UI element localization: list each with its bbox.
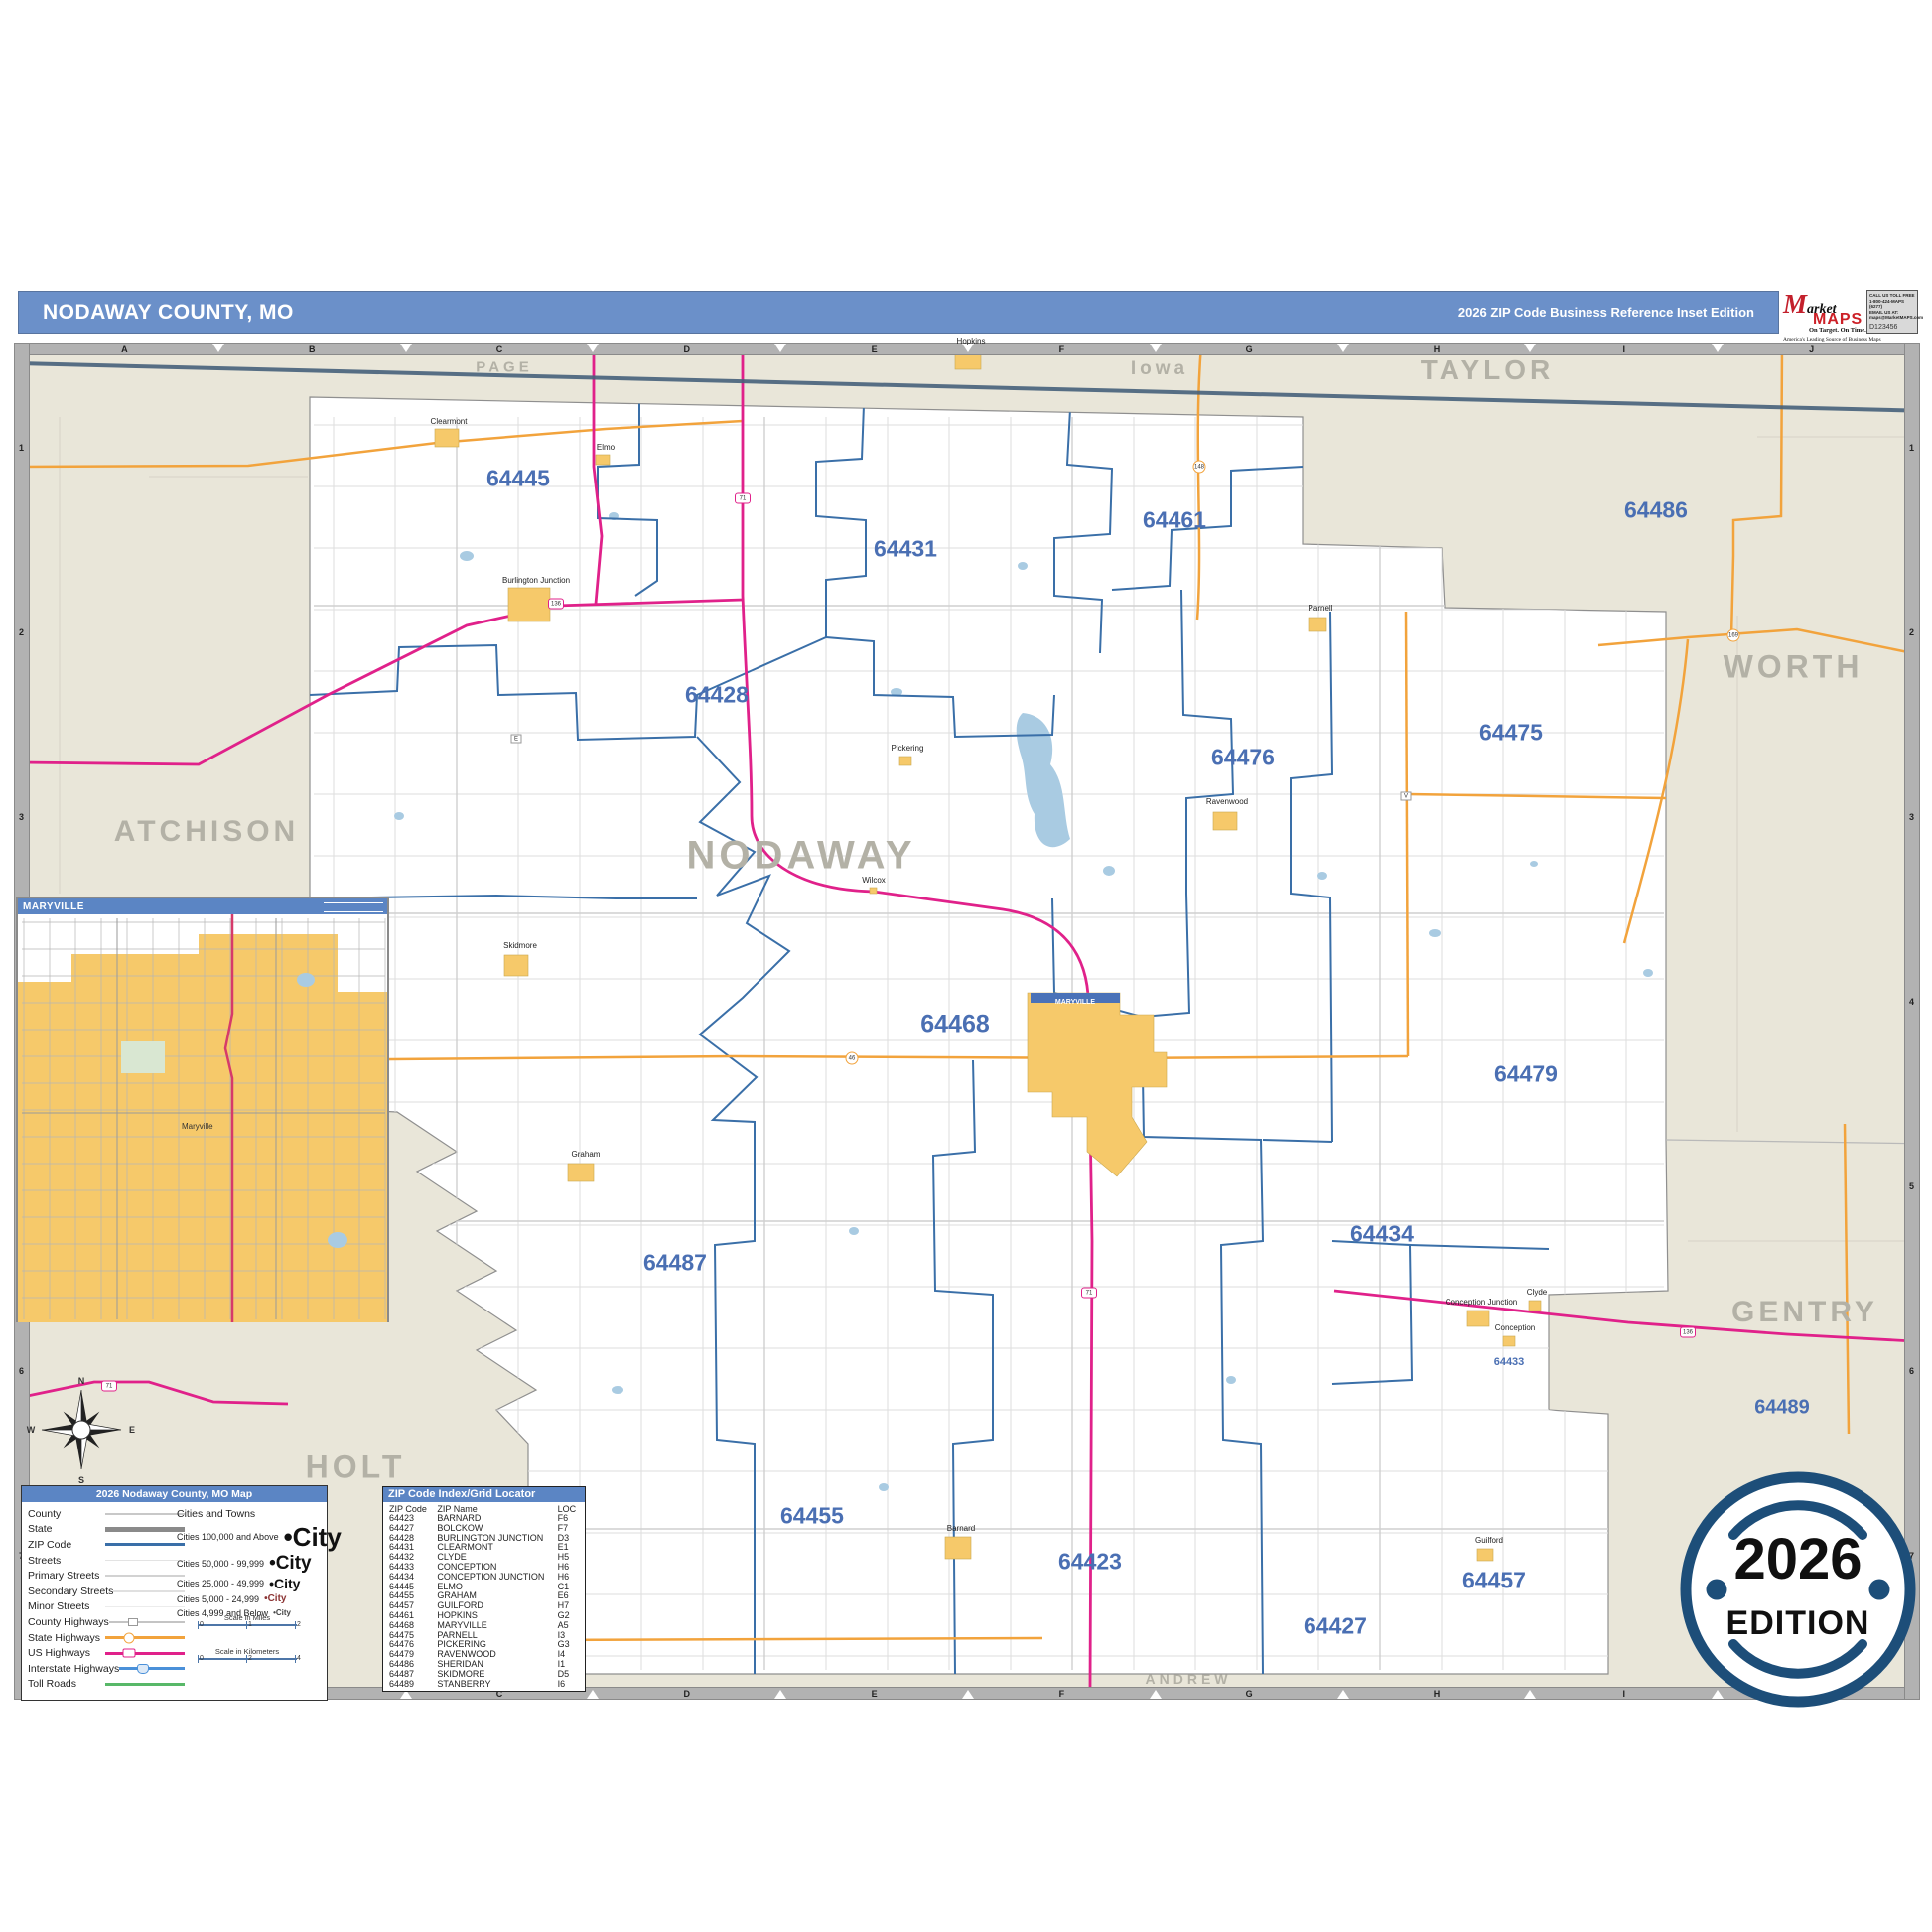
zip-index-title: ZIP Code Index/Grid Locator xyxy=(383,1487,585,1502)
compass-n: N xyxy=(78,1376,85,1386)
legend-city-row: Cities 5,000 - 24,999•City xyxy=(177,1592,326,1606)
legend-row: Minor Streets xyxy=(28,1599,185,1615)
scale-kilometers: Scale in Kilometers024 xyxy=(193,1647,302,1668)
inset-lake xyxy=(328,1232,347,1248)
legend-line xyxy=(109,1621,185,1623)
legend-line-sample xyxy=(119,1667,185,1670)
legend-line-sample xyxy=(105,1652,185,1655)
ruler-notch xyxy=(774,1690,786,1699)
legend-label: County Highways xyxy=(28,1616,109,1628)
grid-letter: A xyxy=(121,345,128,354)
map-poster-page: ABCDEFGHIJ ABCDEFGHIJ 1234567 1234567 PA… xyxy=(0,0,1932,1932)
grid-ruler-top: ABCDEFGHIJ xyxy=(14,343,1920,355)
legend-line xyxy=(105,1513,185,1515)
legend-row: Toll Roads xyxy=(28,1677,185,1693)
legend-row: ZIP Code xyxy=(28,1537,185,1553)
ruler-notch xyxy=(400,344,412,352)
grid-letter: B xyxy=(309,345,316,354)
ruler-notch xyxy=(1150,1690,1162,1699)
scale-bar: 012 xyxy=(198,1624,297,1634)
grid-number: 2 xyxy=(1909,627,1914,637)
legend-label: County xyxy=(28,1508,61,1520)
ruler-notch xyxy=(962,344,974,352)
legend-city-rows: Cities 100,000 and Above•CityCities 50,0… xyxy=(177,1522,326,1620)
grid-number: 4 xyxy=(1909,997,1914,1007)
legend-line xyxy=(105,1636,185,1639)
zip-table-header: ZIP CodeZIP NameLOC xyxy=(387,1504,585,1514)
legend-city-sample: •City xyxy=(269,1577,300,1590)
legend-label: Secondary Streets xyxy=(28,1586,113,1597)
badge-edition: EDITION xyxy=(1726,1604,1870,1642)
grid-number: 3 xyxy=(19,812,24,822)
legend-line xyxy=(105,1560,185,1561)
state-badge-icon xyxy=(124,1632,135,1643)
legend-row: Secondary Streets xyxy=(28,1584,185,1599)
compass-e: E xyxy=(129,1425,135,1435)
legend-box: 2026 Nodaway County, MO Map CountyStateZ… xyxy=(21,1485,328,1701)
scale-tick: 2 xyxy=(246,1655,252,1663)
ruler-notch xyxy=(1150,344,1162,352)
scale-tick: 0 xyxy=(198,1655,204,1663)
compass-rose: N S W E xyxy=(22,1370,141,1489)
ruler-notch xyxy=(962,1690,974,1699)
legend-row: Streets xyxy=(28,1553,185,1569)
zip-table-row: 64457GUILFORDH7 xyxy=(387,1601,585,1611)
grid-letter: D xyxy=(684,1689,691,1699)
inset-title: MARYVILLE xyxy=(23,901,84,912)
zip-table-row: 64489STANBERRYI6 xyxy=(387,1680,585,1690)
scale-tick: 2 xyxy=(295,1621,301,1629)
legend-line xyxy=(105,1543,185,1546)
interstate-badge-icon xyxy=(137,1664,149,1674)
scale-tick: 1 xyxy=(246,1621,252,1629)
legend-line xyxy=(105,1683,185,1686)
legend-line-sample xyxy=(113,1590,185,1592)
legend-line xyxy=(105,1652,185,1655)
grid-number: 6 xyxy=(1909,1366,1914,1376)
zip-table-cell: I6 xyxy=(556,1680,585,1690)
grid-number: 2 xyxy=(19,627,24,637)
legend-row: Interstate Highways xyxy=(28,1661,185,1677)
grid-letter: F xyxy=(1059,345,1065,354)
legend-line-sample xyxy=(105,1527,185,1532)
scale-bar: 024 xyxy=(198,1658,297,1668)
legend-line xyxy=(113,1590,185,1592)
legend-label: Minor Streets xyxy=(28,1600,89,1612)
legend-title: 2026 Nodaway County, MO Map xyxy=(22,1486,327,1502)
legend-city-sample: •City xyxy=(264,1594,286,1604)
grid-letter: D xyxy=(684,345,691,354)
legend-city-label: Cities 5,000 - 24,999 xyxy=(177,1594,259,1604)
zip-table-cell: STANBERRY xyxy=(435,1680,555,1690)
zip-table-row: 64431CLEARMONTE1 xyxy=(387,1543,585,1553)
grid-letter: C xyxy=(496,345,503,354)
legend-city-row: Cities 100,000 and Above•City xyxy=(177,1522,326,1552)
inset-titlebar: MARYVILLE xyxy=(18,898,387,914)
badge-year: 2026 xyxy=(1733,1527,1862,1591)
inset-artwork xyxy=(18,914,387,1322)
maryville-inset-map: MARYVILLE Maryville xyxy=(16,897,389,1322)
ruler-notch xyxy=(1712,344,1724,352)
legend-cities: Cities and Towns Cities 100,000 and Abov… xyxy=(177,1508,326,1620)
zip-table-row: 64479RAVENWOODI4 xyxy=(387,1650,585,1660)
ruler-notch xyxy=(587,344,599,352)
legend-label: Streets xyxy=(28,1555,61,1567)
scale-tick: 4 xyxy=(295,1655,301,1663)
badge-dot-right xyxy=(1869,1580,1890,1600)
legend-line-sample xyxy=(109,1621,185,1623)
legend-label: Interstate Highways xyxy=(28,1663,119,1675)
grid-letter: F xyxy=(1059,1689,1065,1699)
grid-letter: E xyxy=(872,345,878,354)
ruler-notch xyxy=(1337,344,1349,352)
zip-table-cell: 64489 xyxy=(387,1680,435,1690)
inset-city-label: Maryville xyxy=(182,1122,213,1131)
ruler-notch xyxy=(587,1690,599,1699)
legend-row: Primary Streets xyxy=(28,1568,185,1584)
grid-letter: I xyxy=(1623,1689,1626,1699)
ruler-notch xyxy=(1524,1690,1536,1699)
grid-number: 1 xyxy=(1909,443,1914,453)
legend-label: State Highways xyxy=(28,1632,100,1644)
legend-label: US Highways xyxy=(28,1647,90,1659)
compass-s: S xyxy=(78,1475,84,1485)
legend-city-row: Cities 25,000 - 49,999•City xyxy=(177,1575,326,1592)
grid-number: 3 xyxy=(1909,812,1914,822)
legend-cities-header: Cities and Towns xyxy=(177,1508,326,1520)
badge-dot-left xyxy=(1707,1580,1727,1600)
legend-city-label: Cities 25,000 - 49,999 xyxy=(177,1579,264,1588)
compass-star xyxy=(42,1390,121,1469)
zip-index-table: ZIP CodeZIP NameLOC 64423BARNARDF664427B… xyxy=(387,1504,585,1689)
maryville-label-bar xyxy=(1031,993,1120,1003)
legend-city-row: Cities 50,000 - 99,999•City xyxy=(177,1552,326,1575)
inset-pond xyxy=(297,973,315,987)
legend-label: Toll Roads xyxy=(28,1678,76,1690)
zip-table-row: 64455GRAHAME6 xyxy=(387,1591,585,1601)
grid-letter: G xyxy=(1246,1689,1253,1699)
zip-table-row: 64423BARNARDF6 xyxy=(387,1514,585,1524)
legend-line-items: CountyStateZIP CodeStreetsPrimary Street… xyxy=(28,1506,185,1692)
legend-line-sample xyxy=(105,1543,185,1546)
zip-index-box: ZIP Code Index/Grid Locator ZIP CodeZIP … xyxy=(382,1486,586,1692)
legend-line xyxy=(119,1667,185,1670)
legend-line-sample xyxy=(105,1683,185,1686)
legend-row: County Highways xyxy=(28,1614,185,1630)
compass-w: W xyxy=(27,1425,36,1435)
inset-park xyxy=(121,1041,165,1073)
legend-label: ZIP Code xyxy=(28,1539,71,1551)
legend-line xyxy=(105,1527,185,1532)
legend-line-sample xyxy=(105,1513,185,1515)
legend-line xyxy=(105,1575,185,1577)
ruler-notch xyxy=(774,344,786,352)
legend-row: County xyxy=(28,1506,185,1522)
legend-line-sample xyxy=(105,1606,185,1607)
grid-number: 1 xyxy=(19,443,24,453)
edition-badge: 2026 EDITION xyxy=(1676,1467,1920,1712)
zip-table-row: 64434CONCEPTION JUNCTIONH6 xyxy=(387,1573,585,1583)
legend-city-sample: •City xyxy=(284,1524,342,1550)
scale-tick: 0 xyxy=(198,1621,204,1629)
legend-label: State xyxy=(28,1523,53,1535)
zip-table-row: 64486SHERIDANI1 xyxy=(387,1660,585,1670)
legend-line-sample xyxy=(105,1560,185,1561)
grid-letter: H xyxy=(1434,1689,1441,1699)
legend-city-sample: •City xyxy=(269,1554,312,1573)
legend-city-label: Cities 100,000 and Above xyxy=(177,1532,279,1542)
legend-label: Primary Streets xyxy=(28,1570,99,1582)
inset-scale-bar xyxy=(324,902,383,912)
ruler-notch xyxy=(212,344,224,352)
zip-table-row: 64468MARYVILLEA5 xyxy=(387,1621,585,1631)
zip-table-row: 64445ELMOC1 xyxy=(387,1583,585,1592)
legend-city-label: Cities 50,000 - 99,999 xyxy=(177,1559,264,1569)
us-badge-icon xyxy=(123,1649,136,1658)
legend-row: US Highways xyxy=(28,1645,185,1661)
legend-line-sample xyxy=(105,1636,185,1639)
ruler-notch xyxy=(1524,344,1536,352)
legend-line xyxy=(105,1606,185,1607)
legend-line-sample xyxy=(105,1575,185,1577)
grid-letter: H xyxy=(1434,345,1441,354)
scale-miles: Scale in Miles012 xyxy=(193,1613,302,1634)
grid-letter: I xyxy=(1623,345,1626,354)
grid-letter: E xyxy=(872,1689,878,1699)
ruler-notch xyxy=(1337,1690,1349,1699)
grid-letter: J xyxy=(1809,345,1814,354)
legend-row: State xyxy=(28,1522,185,1538)
legend-row: State Highways xyxy=(28,1630,185,1646)
grid-letter: G xyxy=(1246,345,1253,354)
county-badge-icon xyxy=(128,1618,138,1626)
grid-number: 5 xyxy=(1909,1181,1914,1191)
